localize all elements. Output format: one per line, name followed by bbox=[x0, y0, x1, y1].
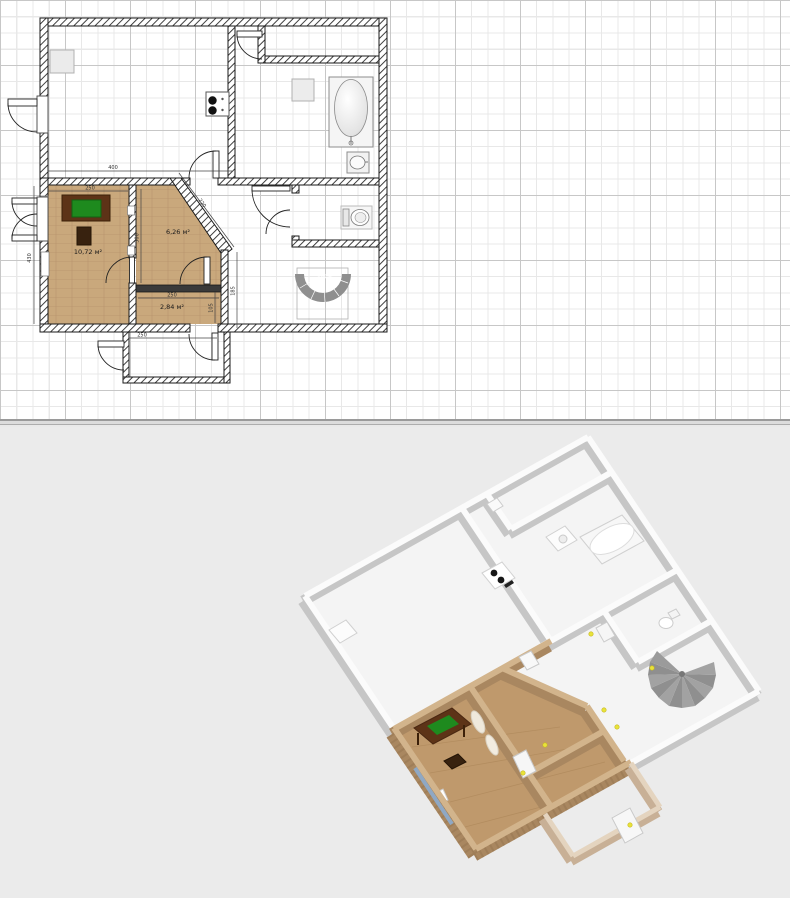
room3-area-label[interactable]: 2,84 м² bbox=[160, 303, 184, 311]
dim-hall-right[interactable]: 185 bbox=[231, 286, 237, 296]
wall-room-divider-b[interactable] bbox=[129, 283, 136, 324]
wall-south-right[interactable] bbox=[218, 324, 387, 332]
door-porch-exterior[interactable] bbox=[98, 341, 124, 370]
desk[interactable] bbox=[62, 195, 110, 221]
sink[interactable] bbox=[347, 152, 369, 173]
bathtub[interactable] bbox=[329, 77, 373, 147]
wall-east[interactable] bbox=[379, 18, 387, 332]
wall-toilet-left-a[interactable] bbox=[292, 185, 299, 193]
floor-plan-app: 400 250 430 300 220 185 105 250 250 10,7… bbox=[0, 0, 790, 898]
dim-porch-width[interactable]: 250 bbox=[137, 333, 147, 339]
washer-box[interactable] bbox=[292, 79, 314, 101]
wall-room3-right[interactable] bbox=[221, 250, 228, 324]
radiator-2[interactable] bbox=[41, 252, 49, 276]
appliance-kitchen-box[interactable] bbox=[50, 50, 74, 73]
dim-room3-width[interactable]: 250 bbox=[167, 293, 177, 299]
dim-room2-height[interactable]: 300 bbox=[135, 233, 141, 243]
view-3d[interactable] bbox=[0, 427, 790, 898]
door-hall-b[interactable] bbox=[266, 210, 290, 234]
door-kitchen[interactable] bbox=[189, 151, 219, 178]
door-hall-a[interactable] bbox=[252, 186, 290, 227]
dim-room1-height[interactable]: 430 bbox=[27, 253, 33, 263]
porch-wall-bottom[interactable] bbox=[123, 377, 230, 383]
dim-room3-right[interactable]: 105 bbox=[209, 303, 215, 313]
view-splitter[interactable] bbox=[0, 419, 790, 427]
porch-wall-right[interactable] bbox=[224, 332, 230, 383]
plan-2d-canvas[interactable]: 400 250 430 300 220 185 105 250 250 10,7… bbox=[0, 0, 790, 419]
wall-mid-left[interactable] bbox=[48, 178, 190, 185]
porch-wall-left[interactable] bbox=[123, 332, 129, 383]
stove[interactable] bbox=[206, 92, 229, 116]
plan-2d-view[interactable]: 400 250 430 300 220 185 105 250 250 10,7… bbox=[0, 0, 790, 419]
dim-kitchen-width[interactable]: 400 bbox=[108, 165, 118, 171]
wall-room2-room3[interactable] bbox=[136, 285, 221, 292]
door-exterior-left[interactable] bbox=[8, 96, 48, 133]
door-french-left[interactable] bbox=[12, 197, 48, 241]
chair[interactable] bbox=[77, 227, 91, 245]
room2-area-label[interactable]: 6,26 м² bbox=[166, 228, 190, 236]
wall-toilet-bottom[interactable] bbox=[292, 240, 379, 247]
outlet-2[interactable] bbox=[128, 246, 135, 255]
wall-south-left[interactable] bbox=[40, 324, 190, 332]
wall-north[interactable] bbox=[40, 18, 387, 26]
toilet[interactable] bbox=[341, 206, 372, 229]
spiral-staircase[interactable] bbox=[295, 268, 351, 319]
outlet-1[interactable] bbox=[128, 206, 135, 215]
dim-room1-width[interactable]: 250 bbox=[85, 186, 95, 192]
view-3d-canvas[interactable] bbox=[0, 427, 790, 898]
wall-niche[interactable] bbox=[265, 56, 379, 63]
door-porch-inner[interactable] bbox=[189, 333, 218, 360]
room1-area-label[interactable]: 10,72 м² bbox=[74, 248, 103, 256]
wall-mid-right[interactable] bbox=[218, 178, 379, 185]
